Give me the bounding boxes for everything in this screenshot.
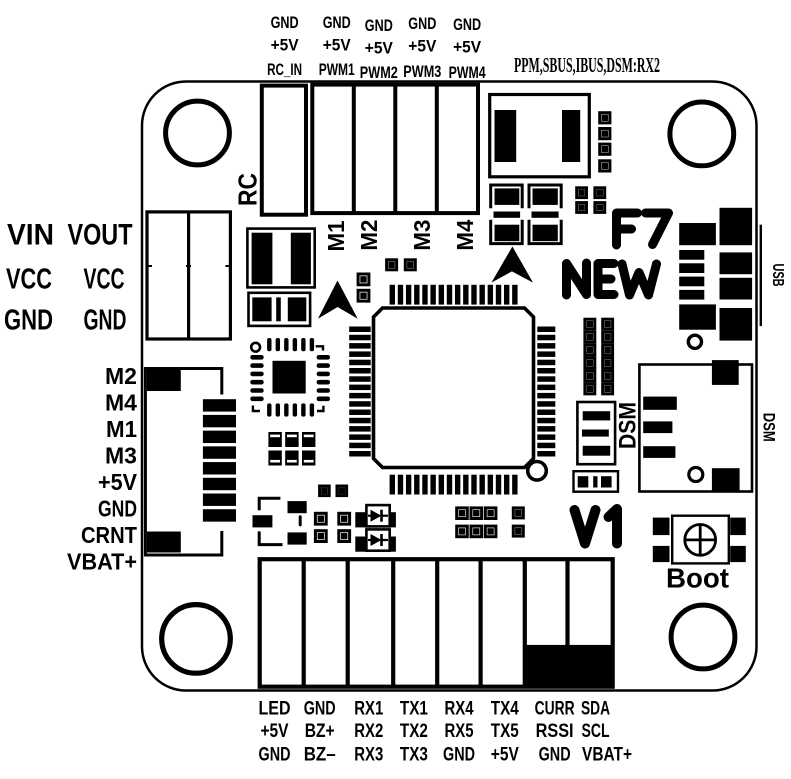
svg-text:PWM2: PWM2 [360,63,398,82]
svg-text:SCL: SCL [582,721,610,742]
svg-text:GND: GND [408,14,436,33]
svg-text:RC: RC [233,173,263,206]
svg-text:M2: M2 [105,363,137,389]
svg-text:USB: USB [769,264,786,287]
svg-text:TX2: TX2 [400,721,428,742]
svg-text:RX1: RX1 [354,699,383,720]
svg-text:GND: GND [98,496,137,522]
svg-text:VBAT+: VBAT+ [67,549,137,575]
svg-text:RX4: RX4 [445,699,474,720]
svg-text:+5V: +5V [261,721,289,742]
svg-text:Boot: Boot [666,563,729,594]
svg-text:RSSI: RSSI [536,721,574,742]
svg-text:+5V: +5V [271,35,300,54]
svg-text:+5V: +5V [408,36,437,55]
svg-text:M4: M4 [105,389,137,415]
svg-text:RX3: RX3 [354,745,383,766]
svg-text:GND: GND [365,16,393,35]
svg-text:VBAT+: VBAT+ [582,745,632,766]
svg-text:PWM4: PWM4 [449,63,486,82]
svg-text:M1: M1 [106,416,137,442]
svg-text:+5V: +5V [98,469,138,495]
svg-text:GND: GND [4,305,53,337]
svg-text:TX4: TX4 [491,699,519,720]
svg-text:+5V: +5V [453,37,482,56]
svg-text:VOUT: VOUT [68,218,133,251]
svg-text:GND: GND [443,745,475,766]
svg-text:DSM: DSM [760,413,779,442]
svg-text:CRNT: CRNT [81,522,137,548]
svg-text:LED: LED [259,699,291,720]
svg-text:PWM3: PWM3 [403,62,441,81]
svg-text:RX2: RX2 [354,721,383,742]
svg-text:TX3: TX3 [400,745,428,766]
svg-text:BZ+: BZ+ [305,721,335,742]
svg-text:VIN: VIN [7,218,54,251]
svg-text:+5V: +5V [323,35,352,54]
svg-text:RX5: RX5 [445,721,474,742]
svg-text:GND: GND [453,15,481,34]
svg-text:TX5: TX5 [491,721,519,742]
svg-text:M2: M2 [356,220,382,251]
svg-text:+5V: +5V [365,38,394,57]
svg-text:VCC: VCC [84,264,125,296]
svg-text:M1: M1 [323,220,349,251]
svg-text:SDA: SDA [581,699,610,720]
svg-text:RC_IN: RC_IN [267,60,302,79]
svg-text:DSM: DSM [615,402,642,449]
svg-text:GND: GND [271,13,299,32]
svg-text:GND: GND [323,13,351,32]
svg-text:GND: GND [304,699,336,720]
svg-text:GND: GND [259,745,291,766]
svg-text:PWM1: PWM1 [319,60,355,79]
svg-text:M3: M3 [105,443,137,469]
svg-text:CURR: CURR [535,699,575,720]
svg-text:BZ–: BZ– [304,745,336,766]
svg-text:M4: M4 [452,219,478,250]
svg-text:M3: M3 [409,220,435,251]
svg-text:PPM,SBUS,IBUS,DSM:RX2: PPM,SBUS,IBUS,DSM:RX2 [514,53,660,77]
svg-text:GND: GND [84,305,127,337]
svg-text:VCC: VCC [6,264,52,296]
svg-text:+5V: +5V [491,745,519,766]
svg-text:TX1: TX1 [400,699,428,720]
svg-text:GND: GND [539,745,571,766]
